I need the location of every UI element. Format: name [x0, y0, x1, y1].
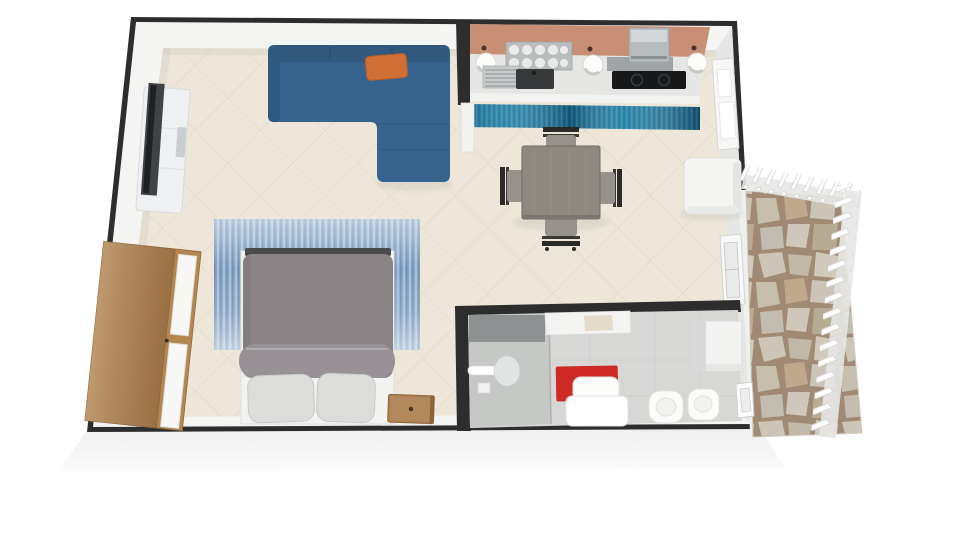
- accent-pillow: [365, 53, 408, 80]
- washbasin: [494, 356, 520, 386]
- dining-table: [522, 146, 600, 219]
- floor-plan-canvas: [0, 0, 960, 540]
- bidet: [688, 389, 719, 420]
- bathroom: [455, 300, 754, 431]
- wall-shelf: [545, 311, 631, 335]
- kitchen-runner: [465, 104, 700, 130]
- kitchen-zone: [463, 24, 710, 130]
- storage-cube: [684, 158, 741, 214]
- sofa-backrest: [269, 45, 449, 62]
- kitchen-divider-end-cap: [461, 103, 474, 152]
- bath-lounger: [566, 377, 628, 426]
- nightstand: [388, 394, 435, 424]
- backsplash-hook: [482, 46, 487, 51]
- soap-holder: [478, 383, 490, 393]
- wardrobe: [85, 241, 201, 430]
- backsplash-hook: [588, 47, 593, 52]
- sofa-armrest: [268, 46, 280, 122]
- backsplash-hook: [692, 46, 697, 51]
- bottom-wall-exterior-face: [58, 427, 786, 472]
- floor-plan-svg: [0, 0, 960, 540]
- toilet: [649, 391, 683, 423]
- double-bed: [239, 248, 395, 424]
- bathroom-cabinet: [694, 321, 742, 371]
- sink: [483, 66, 554, 89]
- kitchen-backsplash: [463, 24, 710, 57]
- shower-wall-panel: [469, 315, 545, 342]
- bathroom-window: [736, 382, 754, 418]
- kitchen-divider-wall: [456, 21, 470, 105]
- tv-stand-group: [136, 83, 191, 214]
- bed-pillow: [316, 373, 376, 423]
- cooktop: [612, 71, 686, 89]
- living-window: [720, 234, 745, 306]
- bed-pillow: [247, 374, 315, 423]
